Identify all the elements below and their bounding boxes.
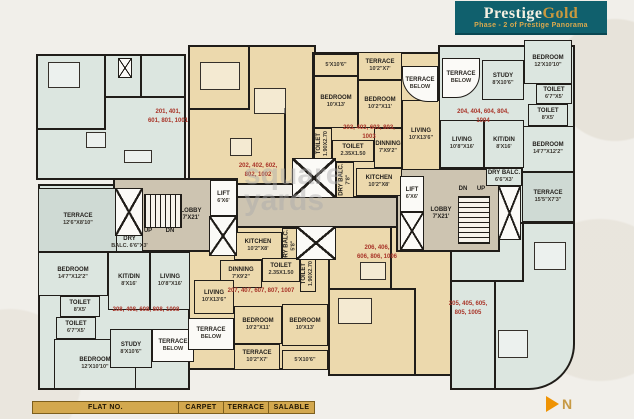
toilet-204-b-label: TOILET [537, 108, 558, 115]
wall-segment [104, 96, 186, 98]
flat-numbers-205: 205, 405, 605,805, 1005 [440, 300, 496, 318]
terrace-below-left-dims: BELOW [158, 346, 187, 352]
wall-segment [104, 54, 106, 130]
toilet-left-upper-dims: 8'X5' [69, 307, 90, 313]
legend-flat-no: FLAT NO. [33, 402, 179, 413]
lift-left-room: LIFT6'X6' [210, 180, 237, 216]
terrace-left-label: TERRACE [63, 213, 93, 220]
wall-segment [522, 222, 524, 282]
toilet-207-label: TOILET [268, 263, 293, 270]
flat-numbers-202: 202, 402, 602,802, 1002 [232, 162, 284, 180]
bedroom-left-upper-label: BEDROOM [57, 267, 88, 274]
dry-balc-204-dims: 6'6"X3' [488, 177, 520, 183]
toilet-204-b-room: TOILET8'X5' [528, 104, 568, 126]
kitchen-207-room: KITCHEN10'2"X8' [234, 232, 282, 260]
kitdin-204-dims: 8'X16' [493, 144, 515, 150]
terrace-204-room: TERRACE15'5"X7'3" [522, 172, 574, 222]
floor-plan: TERRACE12'6"X8'10"DRYBALC. 6'6"X3'BEDROO… [0, 0, 634, 419]
toilet-207-vertical-dims: 1.90X2.70 [308, 261, 314, 286]
brand-header: PrestigeGold Phase - 2 of Prestige Panor… [455, 1, 607, 35]
toilet-207-vertical-room: TOILET1.90X2.70 [300, 256, 316, 292]
bedroom-207-b-room: BEDROOM10'X13' [282, 304, 328, 346]
terrace-strip-203-dims: 5'X10'6" [325, 62, 346, 68]
shaft-center-top [292, 158, 336, 198]
toilet-left-lower-dims: 6'7"X5' [65, 328, 86, 334]
north-label: N [562, 396, 572, 412]
terrace-strip-207-room: 5'X10'6" [282, 350, 328, 370]
living-204-room: LIVING10'8"X16' [440, 120, 484, 168]
furniture [534, 242, 566, 270]
bedroom-207-a-room: BEDROOM10'2"X11' [234, 306, 282, 344]
kitchen-203-room: KITCHEN10'2"X8' [356, 168, 402, 196]
brand-logo: PrestigeGold [484, 6, 579, 21]
flat-numbers-201: 201, 401,601, 801, 1001 [138, 107, 198, 127]
stairs-dn-right: DN [455, 186, 471, 194]
bedroom-207-a-dims: 10'2"X11' [242, 325, 273, 331]
kitchen-207-label: KITCHEN [245, 239, 272, 246]
bedroom-left-upper-dims: 14'7"X12'2" [57, 274, 88, 280]
toilet-204-a-label: TOILET [543, 87, 564, 94]
furniture [48, 62, 80, 88]
dry-balc-left-room: DRYBALC. 6'6"X3' [116, 234, 143, 252]
toilet-204-b-dims: 8'X5' [537, 115, 558, 121]
wall-segment [330, 288, 414, 290]
terrace-below-right-2-dims: BELOW [446, 78, 475, 84]
dinning-203-dims: 7'X9'2" [375, 148, 400, 154]
bedroom-207-a-label: BEDROOM [242, 318, 273, 325]
terrace-204-label: TERRACE [533, 190, 562, 197]
wall-segment [36, 128, 106, 130]
study-204-dims: 8'X10'6" [492, 80, 513, 86]
dry-balc-203-vertical-dims: 7'8" [345, 164, 351, 196]
lift-left-dims: 6'X6' [217, 198, 230, 204]
toilet-207-room: TOILET2.35X1.50 [262, 258, 300, 282]
legend-carpet: CARPET [179, 402, 224, 413]
lobby-left-label: LOBBY7'X21' [168, 207, 214, 223]
dry-balc-left-label: DRY [111, 236, 147, 243]
terrace-207-dims: 10'2"X7' [242, 357, 271, 363]
wall-segment [450, 280, 522, 282]
wall-segment [140, 54, 142, 98]
flat-numbers-204: 204, 404, 604, 804, 1004 [450, 112, 516, 122]
flat-numbers-207: 207, 407, 607, 807, 1007 [226, 286, 296, 296]
bedroom-left-lower-label: BEDROOM [79, 357, 110, 364]
toilet-203-vertical-room: TOILET1.90X2.70 [314, 128, 332, 160]
kitchen-203-label: KITCHEN [366, 175, 393, 182]
furniture [254, 88, 286, 114]
wall-segment [284, 108, 286, 185]
kitdin-204-room: KIT/DIN8'X16' [484, 120, 524, 168]
dinning-203-label: DINNING [375, 141, 400, 148]
living-207-dims: 10'X13'6" [202, 297, 226, 303]
lift-left-label: LIFT [217, 191, 230, 198]
study-left-label: STUDY [120, 342, 141, 349]
furniture [86, 132, 106, 148]
furniture [230, 138, 252, 156]
toilet-203-room: TOILET2.35X1.50 [332, 140, 374, 162]
dry-balc-203-vertical-label: DRY BALC. [338, 164, 345, 196]
bedroom-204-b-room: BEDROOM14'7"X12'2" [522, 126, 574, 172]
toilet-203-dims: 2.35X1.50 [340, 151, 365, 157]
toilet-203-label: TOILET [340, 144, 365, 151]
dry-balc-left-dims: BALC. 6'6"X3' [111, 243, 147, 249]
bedroom-204-a-room: BEDROOM12'X10'10" [524, 40, 572, 84]
toilet-left-lower-room: TOILET6'7"X5' [56, 317, 96, 339]
kitdin-left-room: KIT/DIN8'X16' [108, 252, 150, 310]
flat-numbers-203: 203, 403, 603, 803, 1003 [336, 128, 402, 138]
toilet-204-a-room: TOILET6'7"X5' [536, 84, 572, 104]
living-203-dims: 10'X13'6" [409, 135, 433, 141]
living-204-dims: 10'8"X16' [450, 144, 474, 150]
toilet-left-upper-label: TOILET [69, 300, 90, 307]
living-203-label: LIVING [409, 128, 433, 135]
bedroom-203-a-label: BEDROOM [320, 95, 351, 102]
bedroom-204-b-dims: 14'7"X12'2" [532, 149, 563, 155]
terrace-strip-203-room: 5'X10'6" [314, 54, 358, 76]
lift-right-dims: 6'X6' [406, 194, 419, 200]
terrace-below-right-1-label: TERRACE [405, 77, 434, 84]
bedroom-204-b-label: BEDROOM [532, 142, 563, 149]
lift-right-label: LIFT [406, 187, 419, 194]
flat-numbers-208: 208, 408, 608, 808, 1008 [110, 305, 182, 315]
bedroom-207-b-dims: 10'X13' [289, 325, 320, 331]
bedroom-207-b-label: BEDROOM [289, 318, 320, 325]
flat-numbers-206: 206, 406,606, 806, 1006 [350, 244, 404, 262]
furniture [124, 150, 152, 163]
dinning-207-label: DINNING [228, 267, 253, 274]
terrace-203-room: TERRACE10'2"X7' [358, 52, 402, 80]
living-left-room: LIVING10'8"X16' [150, 252, 190, 310]
kitdin-left-label: KIT/DIN [118, 274, 140, 281]
bedroom-203-b-label: BEDROOM [364, 97, 395, 104]
terrace-204-dims: 15'5"X7'3" [533, 197, 562, 203]
toilet-left-upper-room: TOILET8'X5' [60, 296, 100, 317]
shaft-left-outer [115, 188, 143, 236]
terrace-207-room: TERRACE10'2"X7' [234, 344, 280, 370]
kitchen-203-dims: 10'2"X8' [366, 182, 393, 188]
living-207-label: LIVING [202, 290, 226, 297]
bedroom-203-b-dims: 10'2"X11' [364, 104, 395, 110]
bedroom-left-upper-room: BEDROOM14'7"X12'2" [38, 252, 108, 296]
north-indicator: N [546, 396, 572, 412]
brand-subtitle: Phase - 2 of Prestige Panorama [474, 22, 588, 29]
terrace-below-left-label: TERRACE [158, 339, 187, 346]
living-left-dims: 10'8"X16' [158, 281, 182, 287]
kitchen-207-dims: 10'2"X8' [245, 246, 272, 252]
wall-segment [494, 282, 496, 390]
terrace-203-label: TERRACE [365, 59, 394, 66]
furniture [360, 262, 386, 280]
shaft-top-left [118, 58, 132, 78]
living-204-label: LIVING [450, 137, 474, 144]
terrace-left-room: TERRACE12'6"X8'10" [38, 188, 118, 252]
shaft-right-outer [498, 186, 521, 240]
legend-salable: SALABLE [269, 402, 314, 413]
bedroom-204-a-label: BEDROOM [532, 55, 563, 62]
terrace-left-dims: 12'6"X8'10" [63, 220, 93, 226]
brand-prestige-text: Prestige [484, 5, 543, 22]
terrace-below-bottom-label: TERRACE [196, 327, 225, 334]
terrace-203-dims: 10'2"X7' [365, 66, 394, 72]
north-arrow-icon [546, 396, 559, 412]
study-left-room: STUDY8'X10'6" [110, 329, 152, 368]
furniture [338, 298, 372, 324]
stairs-up-right: UP [473, 186, 489, 194]
living-203-room: LIVING10'X13'6" [402, 100, 440, 170]
bedroom-left-lower-dims: 12'X10'10" [79, 364, 110, 370]
dry-balc-203-vertical-room: DRY BALC.7'8" [336, 162, 354, 198]
toilet-203-vertical-dims: 1.90X2.70 [323, 131, 329, 156]
stairs-up-left: UP [140, 228, 156, 236]
legend-terrace: TERRACE [224, 402, 269, 413]
wall-segment [248, 45, 250, 109]
shaft-center-bottom [296, 226, 336, 260]
corridor-panel [236, 196, 400, 228]
terrace-below-bottom-dims: BELOW [196, 334, 225, 340]
dry-balc-204-label: DRY BALC. [488, 170, 520, 177]
bedroom-203-a-room: BEDROOM10'X13' [314, 76, 358, 128]
furniture [498, 330, 528, 358]
living-left-label: LIVING [158, 274, 182, 281]
kitdin-204-label: KIT/DIN [493, 137, 515, 144]
study-204-label: STUDY [492, 73, 513, 80]
brand-gold-text: Gold [543, 5, 579, 22]
toilet-204-a-dims: 6'7"X5' [543, 94, 564, 100]
terrace-below-right-2-label: TERRACE [446, 71, 475, 78]
lobby-right-label: LOBBY7'X21' [418, 206, 464, 222]
furniture [200, 62, 240, 90]
bedroom-204-a-dims: 12'X10'10" [532, 62, 563, 68]
terrace-207-label: TERRACE [242, 350, 271, 357]
wall-segment [414, 288, 416, 376]
bedroom-203-b-room: BEDROOM10'2"X11' [358, 80, 402, 128]
study-left-dims: 8'X10'6" [120, 349, 141, 355]
dry-balc-204-room: DRY BALC.6'6"X3' [486, 168, 522, 186]
bedroom-203-a-dims: 10'X13' [320, 102, 351, 108]
kitdin-left-dims: 8'X16' [118, 281, 140, 287]
study-204-room: STUDY8'X10'6" [482, 60, 524, 100]
terrace-strip-207-dims: 5'X10'6" [294, 357, 315, 363]
toilet-207-dims: 2.35X1.50 [268, 270, 293, 276]
stairs-dn-left: DN [162, 228, 178, 236]
terrace-below-bottom-room: TERRACEBELOW [188, 318, 234, 350]
legend-bar: FLAT NO. CARPET TERRACE SALABLE [32, 401, 315, 414]
terrace-below-right-1-dims: BELOW [405, 84, 434, 90]
toilet-left-lower-label: TOILET [65, 321, 86, 328]
wall-segment [190, 108, 250, 110]
